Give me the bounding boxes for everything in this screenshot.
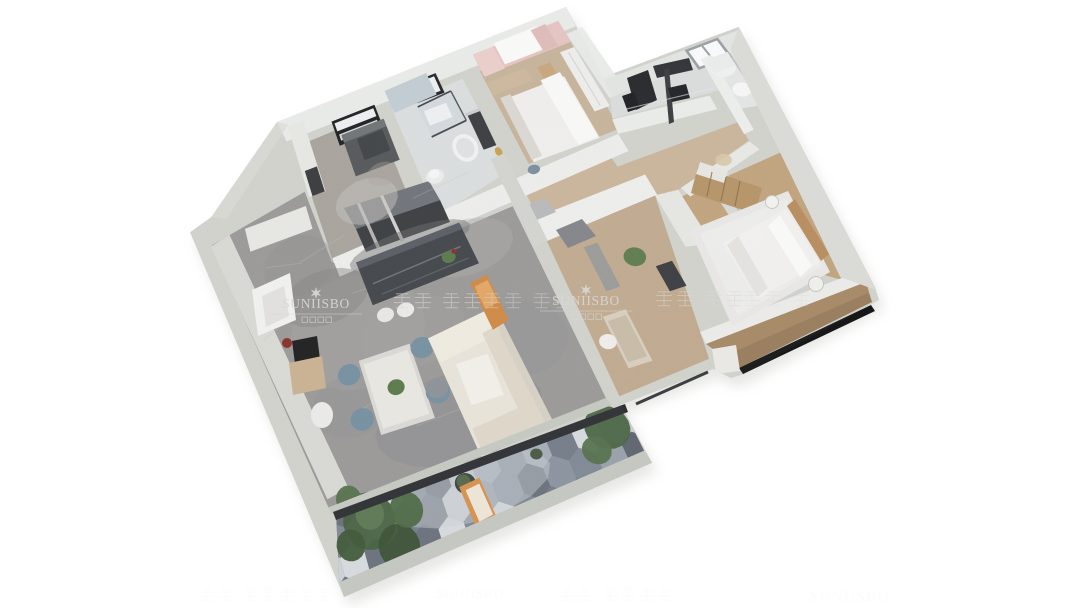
svg-text:SUNIISBO: SUNIISBO bbox=[552, 293, 620, 308]
svg-text:SUNIISBO: SUNIISBO bbox=[282, 296, 350, 311]
svg-text:SUNIISBO: SUNIISBO bbox=[810, 589, 890, 605]
svg-text:SUNIISBO: SUNIISBO bbox=[436, 586, 504, 601]
